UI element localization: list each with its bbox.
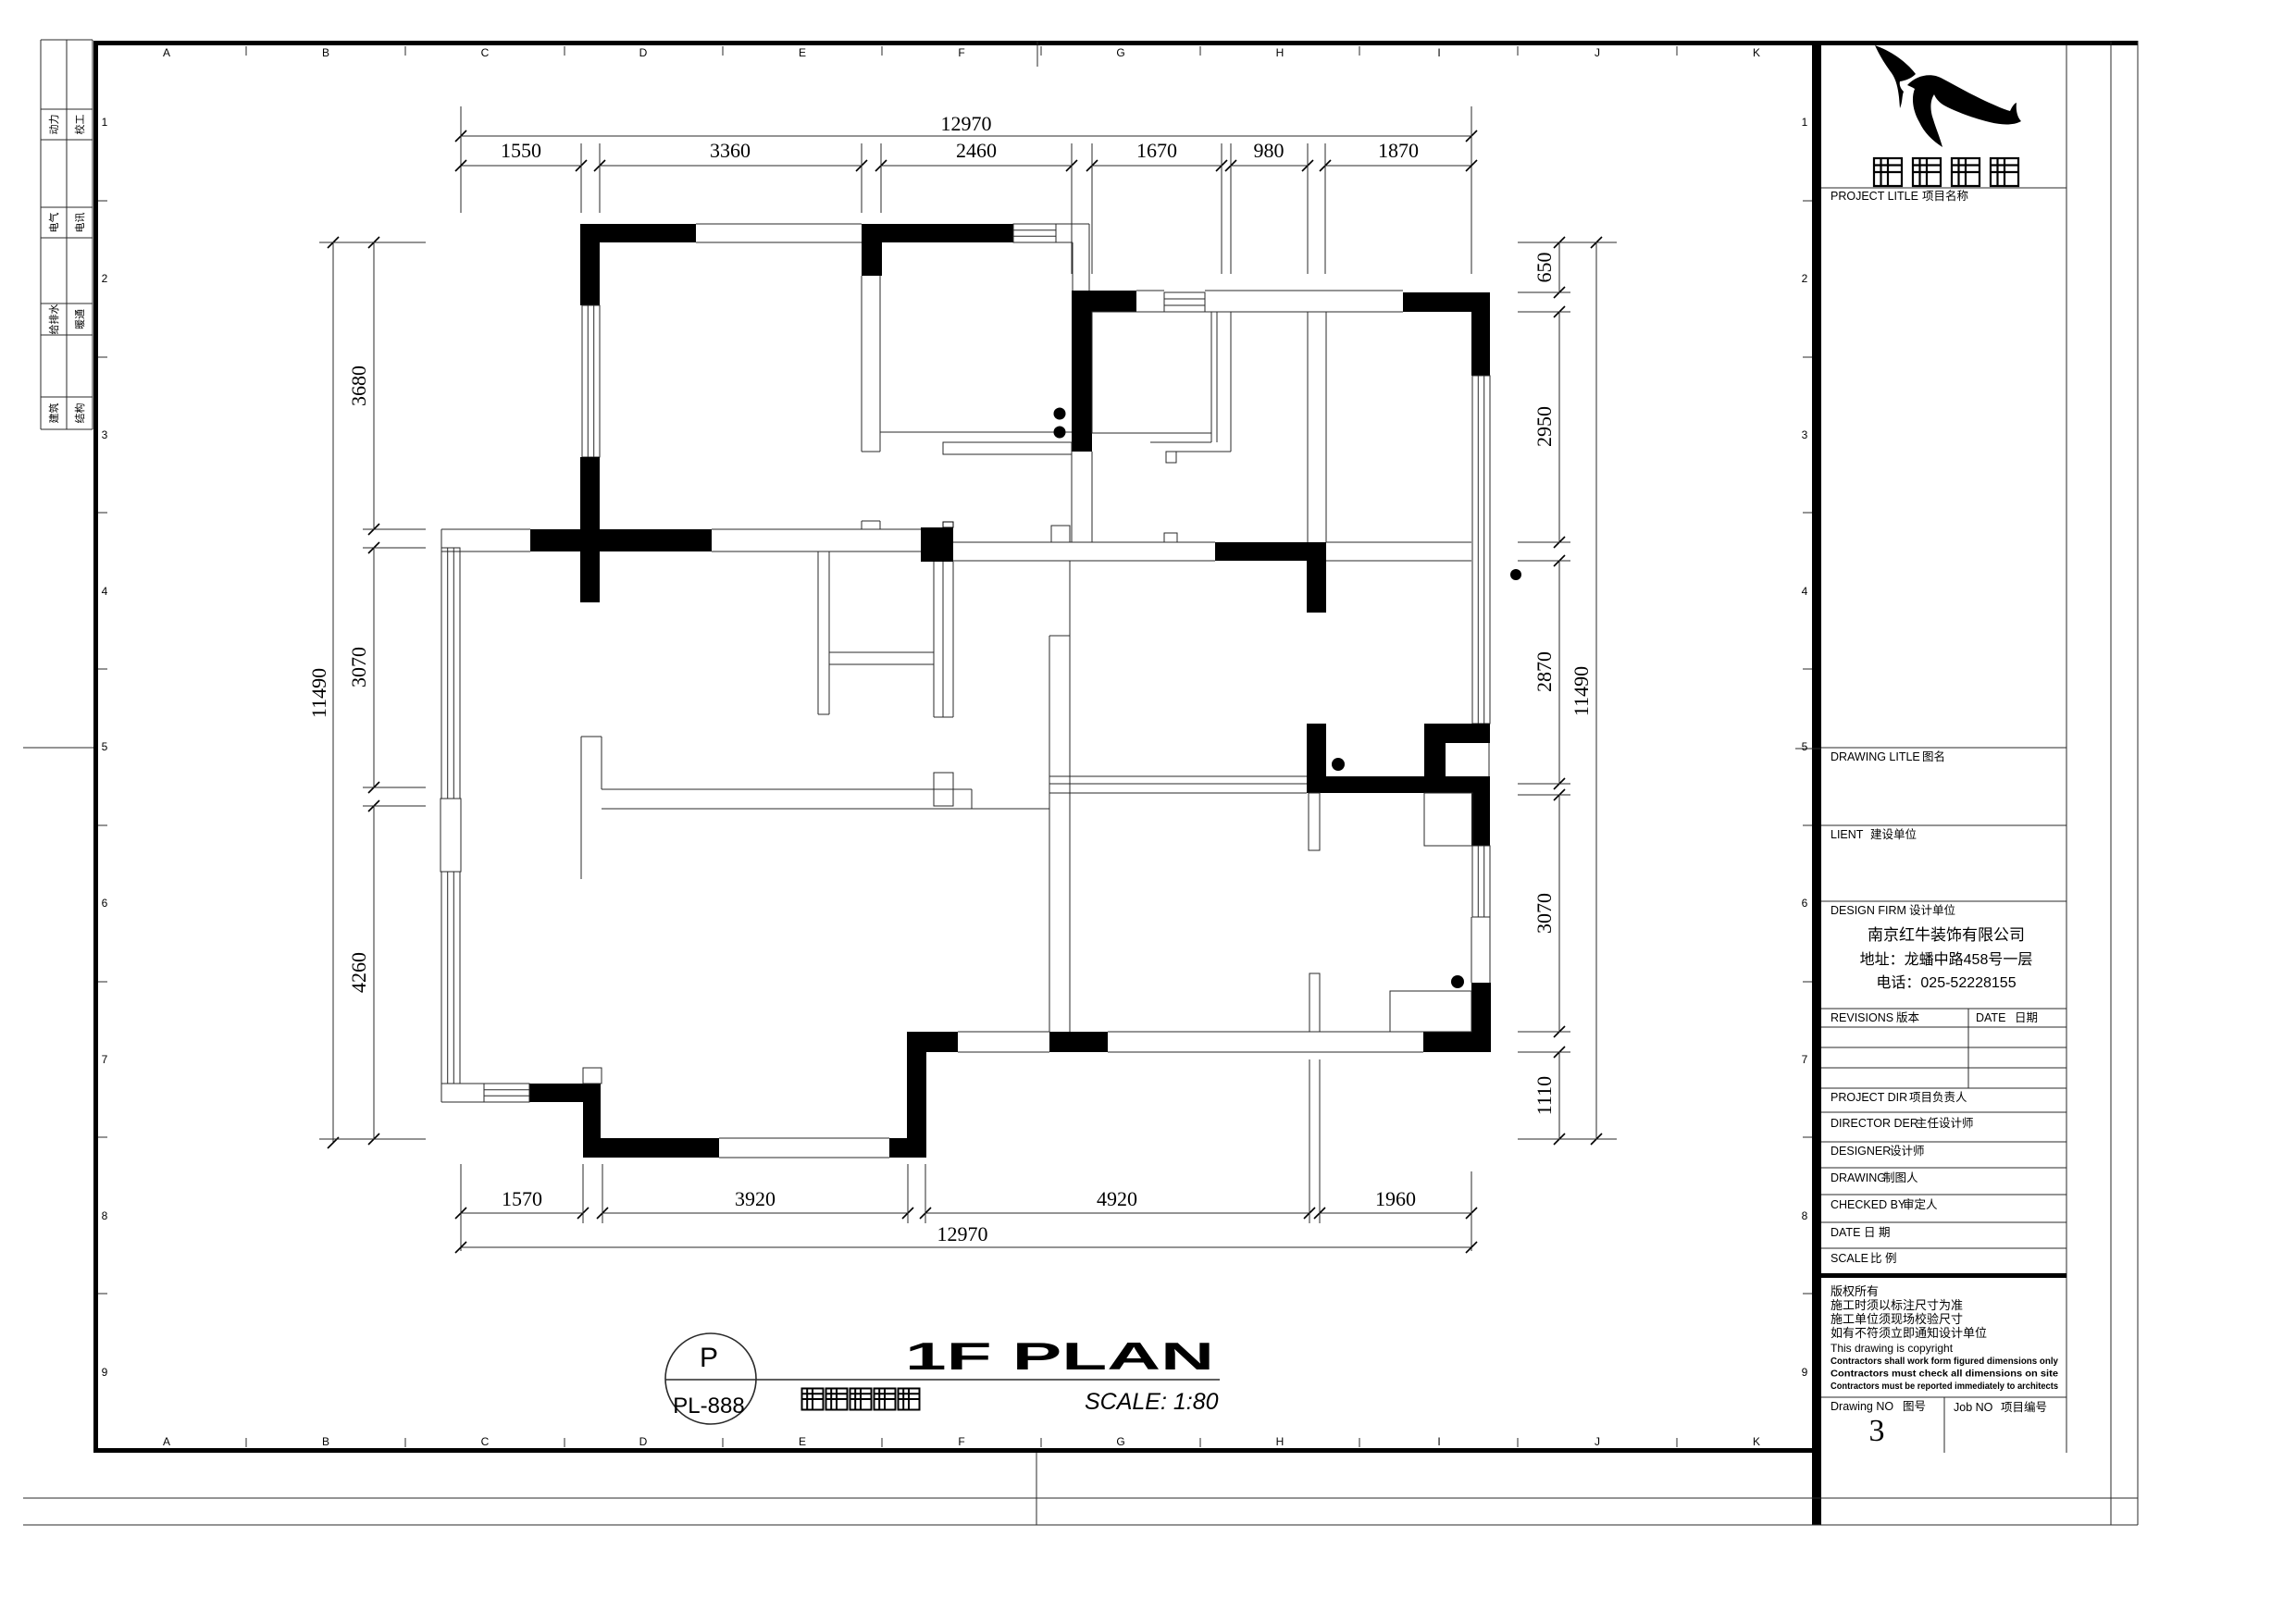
svg-text:C: C bbox=[481, 1435, 490, 1448]
svg-text:SCALE: SCALE bbox=[1831, 1252, 1868, 1265]
svg-text:SCALE: 1:80: SCALE: 1:80 bbox=[1085, 1389, 1219, 1415]
svg-text:12970: 12970 bbox=[941, 112, 992, 135]
svg-text:3680: 3680 bbox=[347, 365, 370, 406]
svg-text:980: 980 bbox=[1254, 139, 1285, 162]
svg-text:D: D bbox=[639, 1435, 648, 1448]
svg-text:3070: 3070 bbox=[1533, 893, 1556, 934]
svg-text:2870: 2870 bbox=[1533, 651, 1556, 692]
svg-text:主任设计师: 主任设计师 bbox=[1916, 1116, 1974, 1130]
svg-text:DATE: DATE bbox=[1831, 1226, 1860, 1239]
svg-text:3: 3 bbox=[1802, 428, 1808, 441]
svg-text:施工时须以标注尺寸为准: 施工时须以标注尺寸为准 bbox=[1831, 1298, 1963, 1312]
svg-text:设计单位: 设计单位 bbox=[1909, 903, 1955, 917]
svg-text:DRAWING: DRAWING bbox=[1831, 1171, 1886, 1184]
svg-text:暖通: 暖通 bbox=[74, 309, 86, 329]
svg-text:8: 8 bbox=[1802, 1209, 1808, 1222]
svg-text:11490: 11490 bbox=[307, 668, 330, 718]
svg-text:3070: 3070 bbox=[347, 647, 370, 688]
svg-text:电话：025-52228155: 电话：025-52228155 bbox=[1876, 974, 2016, 991]
svg-text:4260: 4260 bbox=[347, 952, 370, 993]
svg-text:结构: 结构 bbox=[73, 403, 86, 424]
svg-text:H: H bbox=[1276, 46, 1285, 59]
svg-text:版权所有: 版权所有 bbox=[1831, 1284, 1879, 1298]
svg-text:LIENT: LIENT bbox=[1831, 828, 1864, 841]
svg-text:PROJECT LITLE: PROJECT LITLE bbox=[1831, 190, 1918, 203]
svg-text:动力: 动力 bbox=[48, 115, 60, 135]
svg-text:REVISIONS: REVISIONS bbox=[1831, 1011, 1893, 1024]
svg-text:设计师: 设计师 bbox=[1890, 1144, 1925, 1158]
svg-text:比 例: 比 例 bbox=[1870, 1252, 1896, 1265]
svg-text:CHECKED BY: CHECKED BY bbox=[1831, 1198, 1906, 1211]
svg-text:2460: 2460 bbox=[956, 139, 997, 162]
svg-text:项目负责人: 项目负责人 bbox=[1909, 1091, 1967, 1104]
svg-text:11490: 11490 bbox=[1570, 666, 1593, 716]
svg-text:1570: 1570 bbox=[502, 1187, 542, 1210]
svg-text:4920: 4920 bbox=[1097, 1187, 1137, 1210]
svg-text:电讯: 电讯 bbox=[74, 213, 86, 233]
svg-text:2: 2 bbox=[102, 272, 108, 285]
svg-text:This drawing is copyright: This drawing is copyright bbox=[1831, 1342, 1954, 1355]
svg-text:H: H bbox=[1276, 1435, 1285, 1448]
svg-text:F: F bbox=[958, 1435, 964, 1448]
svg-text:B: B bbox=[322, 1435, 329, 1448]
svg-text:项目编号: 项目编号 bbox=[2001, 1400, 2047, 1414]
svg-text:A: A bbox=[163, 46, 170, 59]
svg-text:K: K bbox=[1753, 1435, 1760, 1448]
svg-text:12970: 12970 bbox=[937, 1222, 988, 1245]
svg-text:校工: 校工 bbox=[73, 115, 86, 135]
svg-text:电气: 电气 bbox=[47, 213, 60, 233]
svg-text:1F PLAN: 1F PLAN bbox=[905, 1334, 1214, 1378]
svg-text:650: 650 bbox=[1533, 253, 1556, 283]
svg-text:PROJECT DIR: PROJECT DIR bbox=[1831, 1091, 1907, 1104]
svg-text:图名: 图名 bbox=[1922, 750, 1945, 763]
svg-text:6: 6 bbox=[102, 897, 108, 910]
svg-text:9: 9 bbox=[102, 1366, 108, 1379]
svg-text:3360: 3360 bbox=[710, 139, 751, 162]
svg-text:DIRECTOR DER: DIRECTOR DER bbox=[1831, 1117, 1918, 1130]
svg-text:G: G bbox=[1116, 1435, 1124, 1448]
svg-text:施工单位须现场校验尺寸: 施工单位须现场校验尺寸 bbox=[1831, 1312, 1963, 1326]
svg-text:1550: 1550 bbox=[501, 139, 541, 162]
svg-text:7: 7 bbox=[1802, 1053, 1808, 1066]
svg-text:D: D bbox=[639, 46, 648, 59]
svg-text:1: 1 bbox=[102, 116, 108, 129]
svg-text:E: E bbox=[799, 46, 806, 59]
svg-text:6: 6 bbox=[1802, 897, 1808, 910]
svg-text:1670: 1670 bbox=[1136, 139, 1177, 162]
svg-text:I: I bbox=[1437, 1435, 1440, 1448]
svg-text:图号: 图号 bbox=[1903, 1400, 1926, 1413]
svg-text:DESIGN FIRM: DESIGN FIRM bbox=[1831, 904, 1906, 917]
svg-text:3: 3 bbox=[1869, 1414, 1885, 1448]
svg-text:制图人: 制图人 bbox=[1883, 1171, 1918, 1184]
svg-text:Contractors must check all dim: Contractors must check all dimensions on… bbox=[1831, 1369, 2058, 1380]
svg-text:3: 3 bbox=[102, 428, 108, 441]
svg-text:Drawing NO: Drawing NO bbox=[1831, 1400, 1893, 1413]
svg-text:Job NO: Job NO bbox=[1954, 1401, 1993, 1414]
svg-text:地址：龙蟠中路458号一层: 地址：龙蟠中路458号一层 bbox=[1860, 951, 2033, 968]
svg-text:项目名称: 项目名称 bbox=[1922, 189, 1968, 203]
svg-text:C: C bbox=[481, 46, 490, 59]
svg-text:1: 1 bbox=[1802, 116, 1808, 129]
svg-text:DATE: DATE bbox=[1976, 1011, 2005, 1024]
svg-text:F: F bbox=[958, 46, 964, 59]
svg-text:2: 2 bbox=[1802, 272, 1808, 285]
svg-text:给排水: 给排水 bbox=[47, 304, 60, 335]
svg-text:A: A bbox=[163, 1435, 170, 1448]
svg-text:DESIGNER: DESIGNER bbox=[1831, 1145, 1891, 1158]
svg-text:DRAWING LITLE: DRAWING LITLE bbox=[1831, 750, 1920, 763]
svg-text:E: E bbox=[799, 1435, 806, 1448]
svg-text:4: 4 bbox=[102, 585, 108, 598]
svg-text:5: 5 bbox=[102, 740, 108, 753]
svg-text:建设单位: 建设单位 bbox=[1870, 827, 1917, 841]
svg-text:5: 5 bbox=[1802, 740, 1808, 753]
svg-text:日期: 日期 bbox=[2015, 1011, 2038, 1024]
svg-text:1960: 1960 bbox=[1375, 1187, 1416, 1210]
svg-text:4: 4 bbox=[1802, 585, 1808, 598]
svg-text:P: P bbox=[700, 1343, 718, 1373]
svg-text:Contractors must be reported i: Contractors must be reported immediately… bbox=[1831, 1381, 2058, 1392]
svg-text:PL-888: PL-888 bbox=[673, 1394, 744, 1419]
svg-text:版本: 版本 bbox=[1896, 1011, 1920, 1024]
svg-text:Contractors shall work form fi: Contractors shall work form figured dime… bbox=[1831, 1356, 2058, 1367]
svg-text:如有不符须立即通知设计单位: 如有不符须立即通知设计单位 bbox=[1831, 1326, 1987, 1340]
svg-text:J: J bbox=[1595, 46, 1600, 59]
svg-text:3920: 3920 bbox=[735, 1187, 776, 1210]
svg-text:G: G bbox=[1116, 46, 1124, 59]
svg-text:I: I bbox=[1437, 46, 1440, 59]
svg-text:K: K bbox=[1753, 46, 1760, 59]
svg-text:建筑: 建筑 bbox=[47, 403, 60, 424]
svg-text:1110: 1110 bbox=[1533, 1076, 1556, 1115]
svg-text:2950: 2950 bbox=[1533, 406, 1556, 447]
svg-text:8: 8 bbox=[102, 1209, 108, 1222]
svg-text:日 期: 日 期 bbox=[1864, 1226, 1890, 1239]
svg-text:9: 9 bbox=[1802, 1366, 1808, 1379]
svg-text:南京红牛装饰有限公司: 南京红牛装饰有限公司 bbox=[1868, 926, 2025, 944]
svg-text:J: J bbox=[1595, 1435, 1600, 1448]
svg-text:1870: 1870 bbox=[1378, 139, 1419, 162]
svg-text:审定人: 审定人 bbox=[1903, 1197, 1938, 1211]
svg-text:7: 7 bbox=[102, 1053, 108, 1066]
svg-text:B: B bbox=[322, 46, 329, 59]
